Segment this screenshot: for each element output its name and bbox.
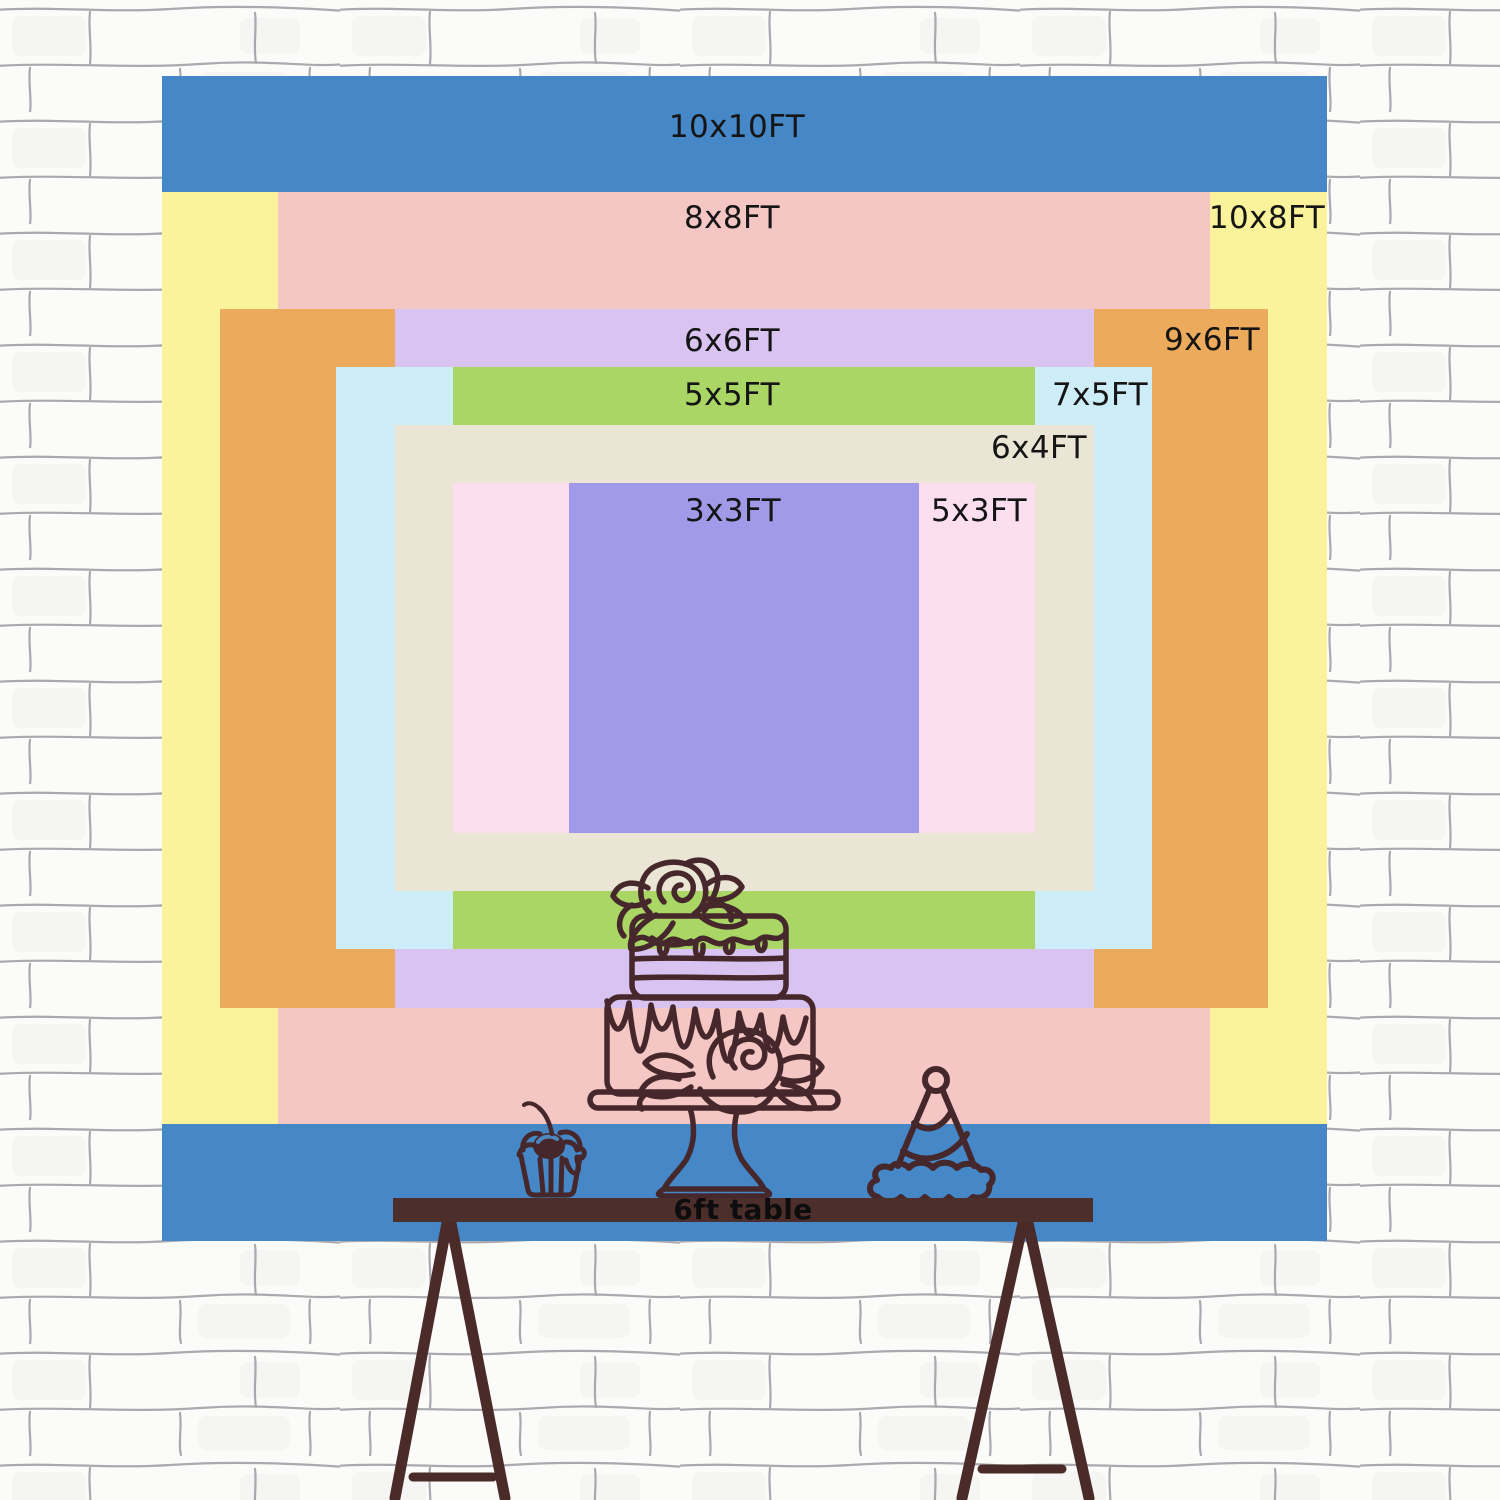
backdrop-stack: 10x10FT10x8FT8x8FT9x6FT6x6FT7x5FT5x5FT6x…: [0, 0, 1500, 1500]
label-10x8ft: 10x8FT: [1209, 200, 1325, 236]
label-9x6ft: 9x6FT: [1164, 322, 1260, 358]
label-8x8ft: 8x8FT: [684, 200, 780, 236]
label-5x3ft: 5x3FT: [931, 493, 1027, 529]
label-6x4ft: 6x4FT: [991, 430, 1087, 466]
table-top: 6ft table: [393, 1198, 1093, 1222]
table-label: 6ft table: [673, 1198, 812, 1222]
layer-3x3ft: [569, 483, 919, 833]
label-10x10ft: 10x10FT: [669, 109, 805, 145]
label-5x5ft: 5x5FT: [684, 377, 780, 413]
label-3x3ft: 3x3FT: [685, 493, 781, 529]
backdrop-size-chart: 10x10FT10x8FT8x8FT9x6FT6x6FT7x5FT5x5FT6x…: [0, 0, 1500, 1500]
label-7x5ft: 7x5FT: [1052, 377, 1148, 413]
label-6x6ft: 6x6FT: [684, 323, 780, 359]
